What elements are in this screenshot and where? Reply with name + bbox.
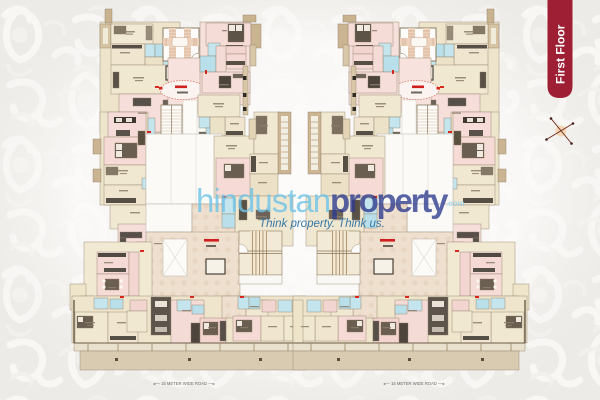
- svg-text:◂–– 15 METER WIDE ROAD ––▸: ◂–– 15 METER WIDE ROAD ––▸: [153, 381, 215, 386]
- svg-text:Think property. Think us.: Think property. Think us.: [259, 218, 385, 230]
- svg-text:hindustan: hindustan: [196, 182, 330, 219]
- svg-text:◂–– 15 METER WIDE ROAD ––▸: ◂–– 15 METER WIDE ROAD ––▸: [383, 381, 445, 386]
- svg-text:.com: .com: [446, 199, 465, 208]
- svg-text:property: property: [330, 182, 449, 219]
- svg-text:First Floor: First Floor: [554, 24, 568, 84]
